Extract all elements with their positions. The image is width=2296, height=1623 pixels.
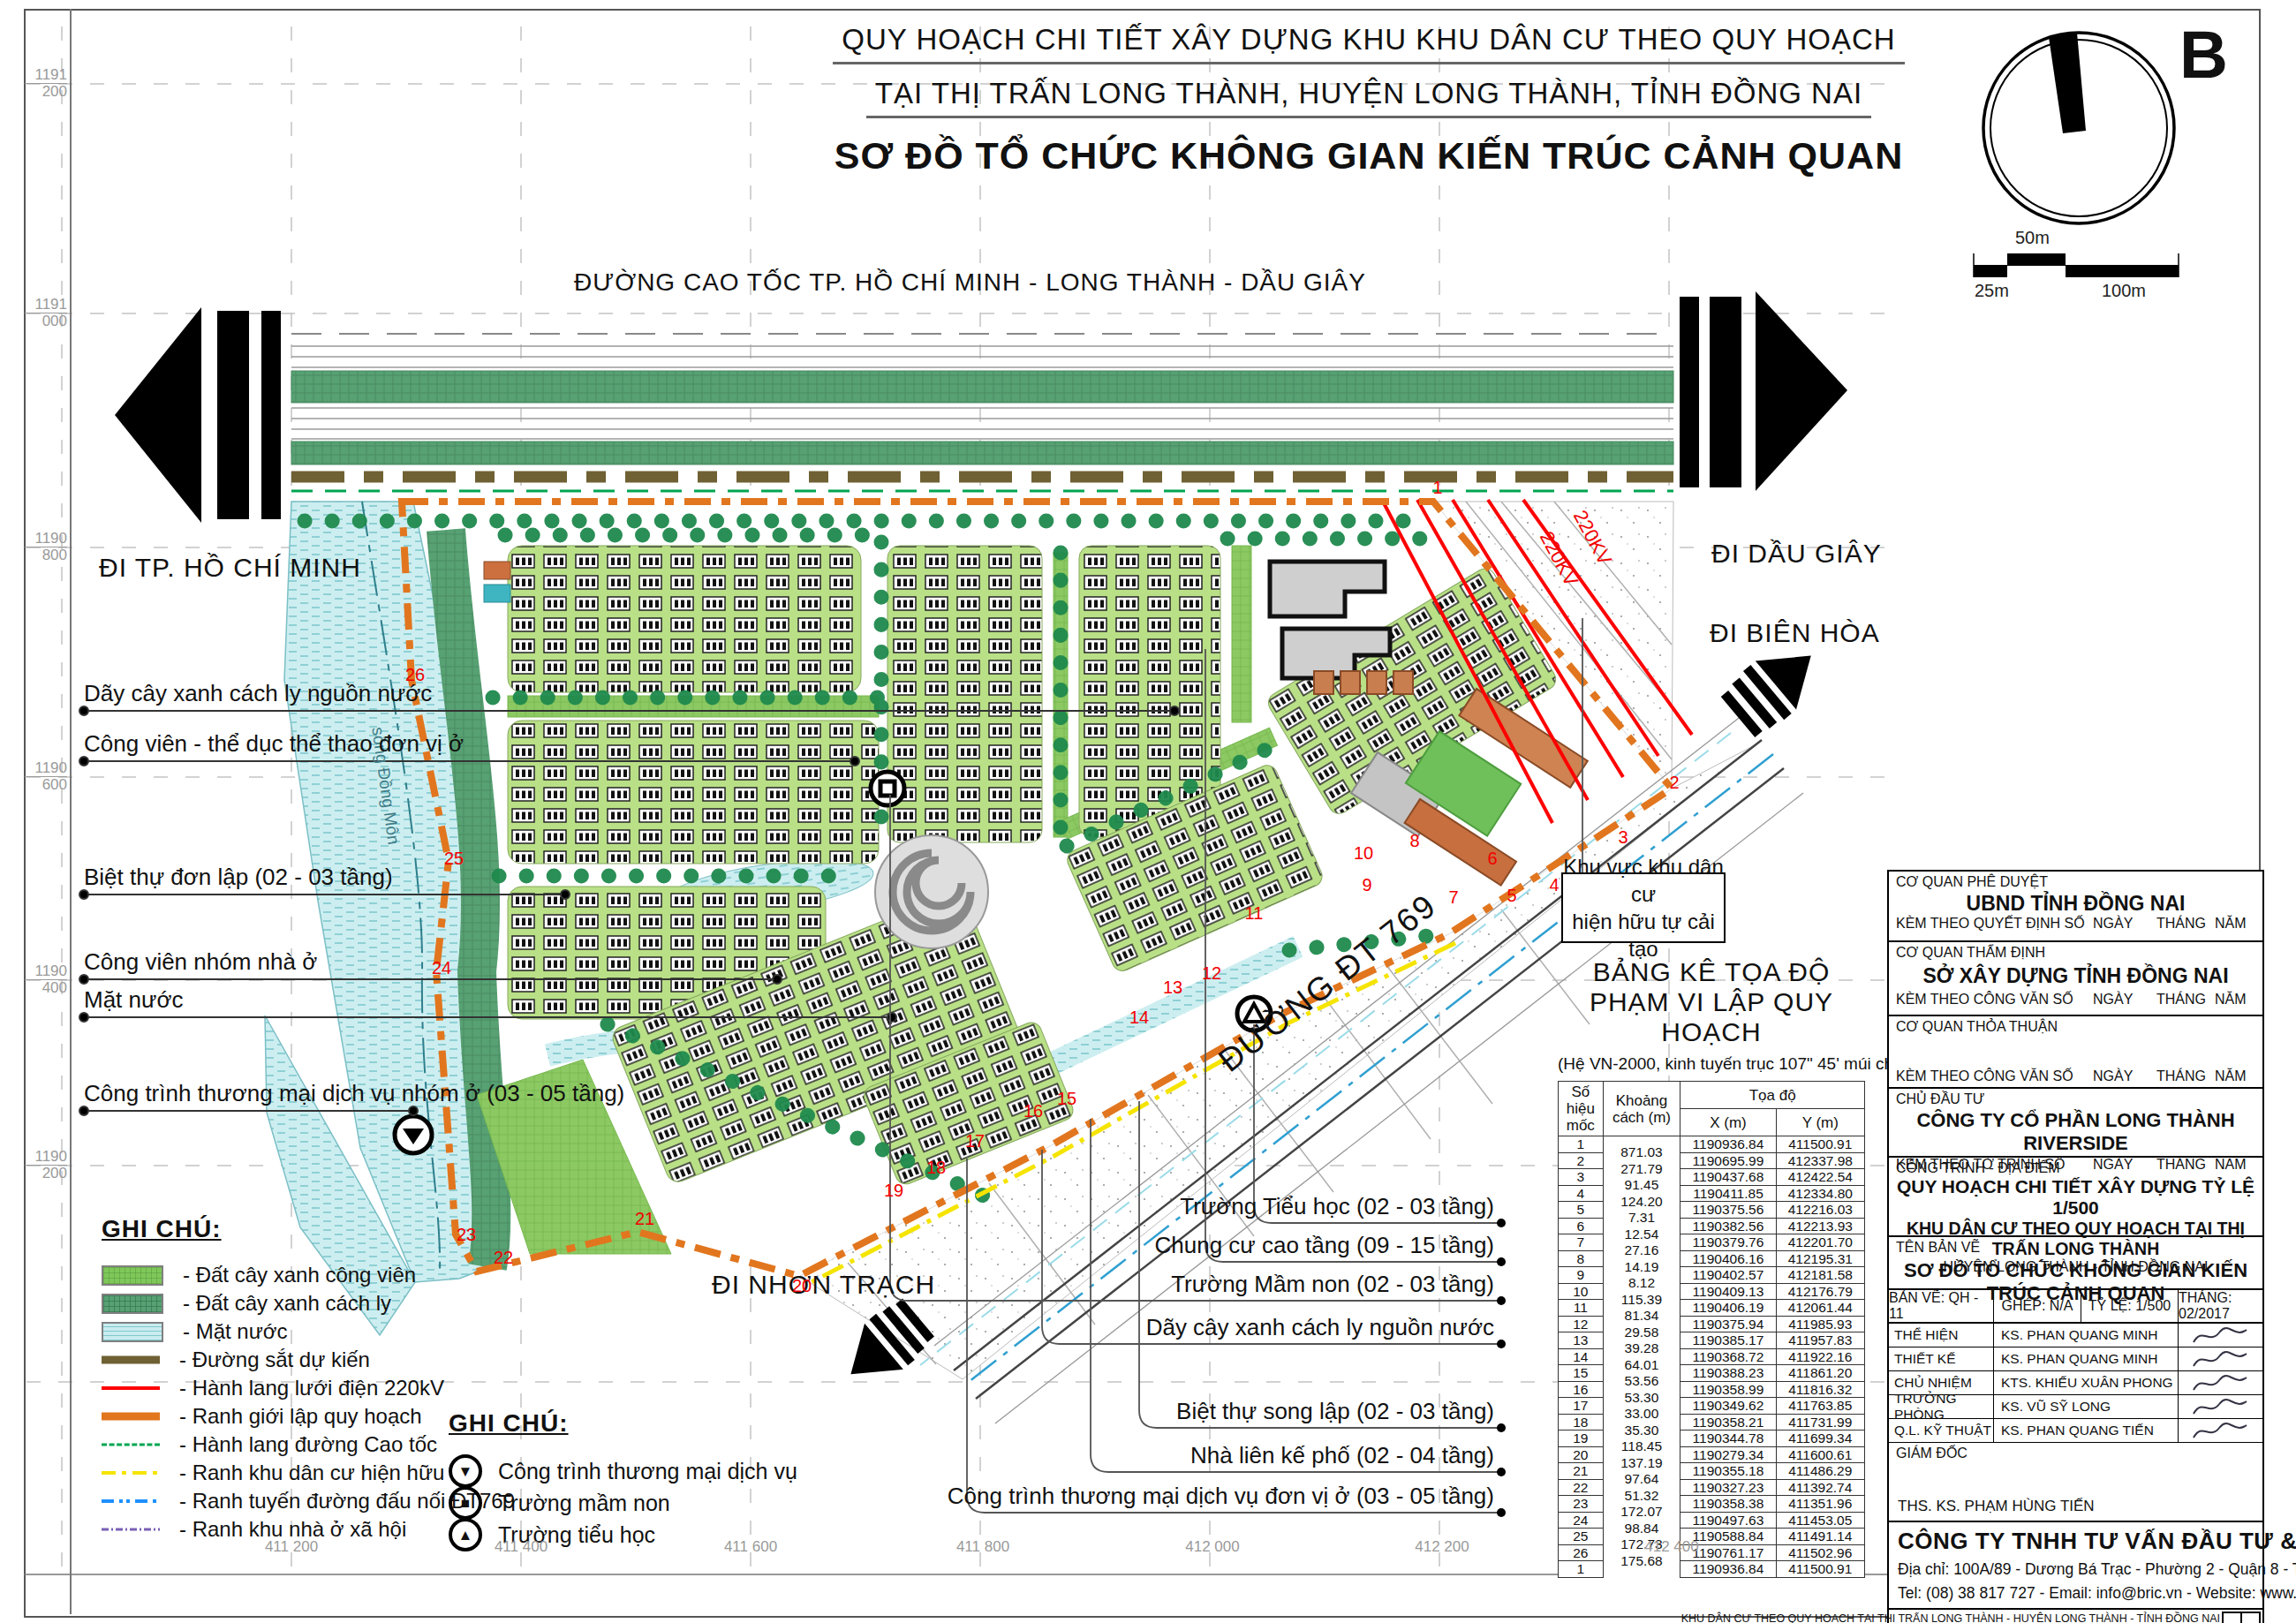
section-label: CÔNG TRÌNH - ĐỊA ĐIỂM [1889, 1158, 2262, 1176]
agreement-section: CƠ QUAN THỎA THUẬN KÈM THEO CÔNG VĂN SỐN… [1889, 1016, 2262, 1089]
legend-symbols: GHI CHÚ: ▼ Công trình thương mại dịch vụ… [449, 1409, 819, 1551]
section-label: TÊN BẢN VẼ [1889, 1237, 2262, 1256]
highway-band [291, 334, 1673, 491]
map-callout-label: Trường Mầm non (02 - 03 tầng) [1171, 1271, 1494, 1298]
legend-item-label: - Mặt nước [183, 1319, 288, 1344]
plan-sheet: QUY HOẠCH CHI TIẾT XÂY DỰNG KHU KHU DÂN … [0, 0, 2296, 1623]
drawing-name: SƠ ĐỒ TỔ CHỨC KHÔNG GIAN KIẾN TRÚC CẢNH … [1889, 1259, 2262, 1305]
map-callout-label: Trường Tiểu học (02 - 03 tầng) [1180, 1193, 1494, 1220]
investor-name: CÔNG TY CỔ PHẦN LONG THÀNH RIVERSIDE [1889, 1109, 2262, 1155]
map-annotation-label: Dãy cây xanh cách ly nguồn nước [84, 680, 432, 707]
boundary-marker-number: 21 [635, 1209, 654, 1229]
company-name: CÔNG TY TNHH TƯ VẤN ĐẦU TƯ & XÂY DỰNG BR… [1898, 1528, 2262, 1555]
boundary-marker-number: 13 [1163, 978, 1182, 998]
legend-swatch [102, 1521, 160, 1538]
grid-label: 411 800 [939, 1538, 1027, 1556]
kindergarten-symbol [871, 772, 904, 805]
legend-item-label: - Ranh khu dân cư hiện hữu [179, 1461, 444, 1485]
direction-nhontrach-label: ĐI NHƠN TRẠCH [712, 1270, 935, 1300]
coordinate-table-block: BẢNG KÊ TỌA ĐỘ PHẠM VI LẬP QUY HOẠCH (Hệ… [1558, 957, 1865, 1578]
coord-table-row: 1 871.03 1190936.84 411500.91 [1559, 1136, 1865, 1153]
map-callout-label: Nhà liên kế phố (02 - 04 tầng) [1190, 1442, 1494, 1469]
legend-symbol-icon: ▼ [449, 1454, 482, 1488]
legend-swatch [102, 1380, 160, 1397]
legend-swatch [102, 1493, 160, 1510]
map-callout-label: Công trình thương mại dịch vụ đơn vị ở (… [948, 1483, 1494, 1510]
legend-swatch [102, 1265, 163, 1286]
review-section: CƠ QUAN THẨM ĐỊNH SỞ XÂY DỰNG TỈNH ĐỒNG … [1889, 942, 2262, 1016]
direction-daugiay-label: ĐI DẦU GIÂY [1711, 539, 1882, 569]
map-callout-label: Chung cư cao tầng (09 - 15 tầng) [1154, 1232, 1494, 1259]
map-annotation-label: Mặt nước [84, 986, 183, 1014]
boundary-marker-number: 16 [1023, 1101, 1043, 1121]
sheet-title: QUY HOẠCH CHI TIẾT XÂY DỰNG KHU KHU DÂN … [826, 23, 1912, 177]
director-name: THS. KS. PHẠM HÙNG TIẾN [1898, 1498, 2095, 1515]
approve-agency: UBND TỈNH ĐỒNG NAI [1889, 892, 2262, 916]
col-header-distance: Khoảng cách (m) [1603, 1082, 1680, 1136]
company-section: CÔNG TY TNHH TƯ VẤN ĐẦU TƯ & XÂY DỰNG BR… [1889, 1522, 2262, 1610]
signature [2179, 1419, 2262, 1442]
staff-row: THIẾT KẾ KS. PHAN QUANG MINH [1889, 1347, 2262, 1371]
boundary-marker-number: 1 [1432, 478, 1442, 498]
staff-row: TRƯỞNG PHÒNG KS. VŨ SỸ LONG [1889, 1395, 2262, 1419]
signature [2179, 1347, 2262, 1370]
grid-label: 1191000 [25, 297, 67, 329]
existing-area-note-box: Khu vực khu dân cư hiện hữu tự cải tạo [1561, 872, 1726, 943]
grid-label: 1190400 [25, 963, 67, 996]
boundary-marker-number: 19 [884, 1181, 903, 1201]
boundary-marker-number: 6 [1487, 849, 1497, 869]
grid-label: 412 400 [1628, 1538, 1716, 1556]
strip-line-1: KHU DÂN CƯ THEO QUY HOẠCH TẠI THỊ TRẤN L… [1681, 1612, 2220, 1623]
scale-100m-label: 100m [2102, 281, 2146, 301]
commercial-symbol [395, 1116, 432, 1153]
grid-label: 1190600 [25, 760, 67, 793]
compass-needle [2049, 33, 2086, 133]
grid-label: 1190200 [25, 1149, 67, 1181]
legend-swatch [102, 1352, 160, 1369]
boundary-marker-number: 17 [965, 1131, 985, 1151]
north-label: B [2179, 16, 2228, 93]
boundary-marker-number: 3 [1618, 827, 1628, 848]
grid-label: 411 600 [706, 1538, 795, 1556]
grid-label: 412 000 [1168, 1538, 1257, 1556]
signature [2179, 1324, 2262, 1347]
map-annotation-label: Biệt thự đơn lập (02 - 03 tầng) [84, 864, 393, 891]
boundary-marker-number: 5 [1507, 886, 1516, 906]
title-line-3: SƠ ĐỒ TỔ CHỨC KHÔNG GIAN KIẾN TRÚC CẢNH … [826, 134, 1912, 177]
legend-item: - Đất cây xanh công viên [102, 1261, 525, 1289]
coord-table-subtitle: (Hệ VN-2000, kinh tuyến trục 107" 45' mú… [1558, 1054, 1865, 1074]
legend-item-label: - Đất cây xanh công viên [183, 1263, 416, 1287]
legend-item-label: - Ranh giới lập quy hoạch [179, 1404, 422, 1429]
legend-swatch [102, 1322, 163, 1342]
section-label: GIÁM ĐỐC [1889, 1443, 2262, 1461]
col-header-coords: Tọa độ [1680, 1082, 1865, 1109]
boundary-marker-number: 15 [1057, 1089, 1076, 1109]
coordinate-table: Số hiệu mốc Khoảng cách (m) Tọa độ X (m)… [1558, 1081, 1865, 1578]
boundary-marker-number: 10 [1354, 843, 1373, 864]
title-line-1: QUY HOẠCH CHI TIẾT XÂY DỰNG KHU KHU DÂN … [833, 23, 1904, 64]
legend-item-label: - Đường sắt dự kiến [179, 1347, 370, 1372]
compass [1983, 33, 2174, 223]
legend-item-label: - Hành lang lưới điện 220kV [179, 1376, 444, 1400]
boundary-marker-number: 8 [1409, 831, 1419, 851]
section-label: CƠ QUAN THỎA THUẬN [1889, 1016, 2262, 1035]
director-section: GIÁM ĐỐC THS. KS. PHẠM HÙNG TIẾN [1889, 1443, 2262, 1522]
legend-symbol-label: Trường mầm non [498, 1491, 670, 1516]
boundary-marker-number: 7 [1448, 887, 1458, 908]
bottom-strip: KHU DÂN CƯ THEO QUY HOẠCH TẠI THỊ TRẤN L… [1889, 1610, 2262, 1623]
col-header-y: Y (m) [1776, 1109, 1864, 1136]
investor-section: CHỦ ĐẦU TƯ CÔNG TY CỔ PHẦN LONG THÀNH RI… [1889, 1089, 2262, 1158]
coord-table-title-1: BẢNG KÊ TỌA ĐỘ [1558, 957, 1865, 987]
section-label: CƠ QUAN PHÊ DUYỆT [1889, 872, 2262, 890]
boundary-marker-number: 24 [432, 958, 451, 978]
legend-swatch [102, 1465, 160, 1482]
boundary-marker-number: 2 [1669, 773, 1679, 793]
direction-hcmc-label: ĐI TP. HỒ CHÍ MINH [99, 553, 361, 583]
staff-row: Q.L. KỸ THUẬT KS. PHAN QUANG TIẾN [1889, 1419, 2262, 1443]
legend-item: - Hành lang lưới điện 220kV [102, 1374, 525, 1402]
map-callout-label: Dãy cây xanh cách ly nguồn nước [1146, 1314, 1494, 1341]
map-annotation-label: Công viên nhóm nhà ở [84, 948, 317, 976]
legend-swatch [102, 1294, 163, 1314]
grid-label: 1191200 [25, 67, 67, 100]
staff-rows: THỂ HIỆN KS. PHAN QUANG MINH THIẾT KẾ KS… [1889, 1324, 2262, 1443]
arrow-to-daugiay [1680, 291, 1847, 491]
drawing-name-section: TÊN BẢN VẼ SƠ ĐỒ TỔ CHỨC KHÔNG GIAN KIẾN… [1889, 1237, 2262, 1290]
scale-25m-label: 25m [1975, 281, 2009, 301]
boundary-marker-number: 20 [792, 1276, 812, 1296]
col-header-moc: Số hiệu mốc [1559, 1082, 1604, 1136]
revision-boxes [2222, 1612, 2261, 1623]
company-address: Địa chỉ: 100A/89 - Dương Bá Trạc - Phườn… [1898, 1560, 2262, 1579]
map-annotation-label: Công trình thương mại dịch vụ nhóm ở (03… [84, 1080, 624, 1107]
staff-row: THỂ HIỆN KS. PHAN QUANG MINH [1889, 1324, 2262, 1347]
col-header-x: X (m) [1680, 1109, 1776, 1136]
highway-label: ĐƯỜNG CAO TỐC TP. HỒ CHÍ MINH - LONG THÀ… [574, 268, 1272, 297]
direction-bienhoa-label: ĐI BIÊN HÒA [1710, 618, 1880, 648]
boundary-marker-number: 14 [1129, 1008, 1149, 1028]
legend-symbols-title: GHI CHÚ: [449, 1409, 819, 1438]
grid-label: 412 200 [1398, 1538, 1486, 1556]
legend-symbol-item: ■ Trường mầm non [449, 1487, 819, 1519]
coord-table-title-2: PHẠM VI LẬP QUY HOẠCH [1558, 987, 1865, 1047]
boundary-marker-number: 23 [457, 1225, 476, 1245]
signature [2179, 1395, 2262, 1418]
approval-section: CƠ QUAN PHÊ DUYỆT UBND TỈNH ĐỒNG NAI KÈM… [1889, 872, 2262, 942]
legend-symbol-icon: ■ [449, 1486, 482, 1520]
project-line-1: QUY HOẠCH CHI TIẾT XÂY DỰNG TỶ LỆ 1/500 [1889, 1176, 2262, 1219]
legend-item: - Mặt nước [102, 1317, 525, 1346]
scale-50m-label: 50m [2015, 228, 2050, 248]
legend-swatch [102, 1437, 160, 1453]
boundary-marker-number: 11 [1245, 903, 1264, 924]
note-line-1: Khu vực khu dân cư [1563, 853, 1724, 908]
legend-item: - Đất cây xanh cách ly [102, 1289, 525, 1317]
title-line-2: TẠI THỊ TRẤN LONG THÀNH, HUYỆN LONG THÀN… [866, 77, 1871, 118]
grid-label: 1190800 [25, 531, 67, 563]
signature [2179, 1371, 2262, 1394]
boundary-marker-number: 9 [1362, 875, 1371, 895]
company-contact: Tel: (08) 38 817 727 - Email: info@bric.… [1898, 1584, 2262, 1603]
boundary-marker-number: 26 [405, 665, 425, 685]
legend-item: - Đường sắt dự kiến [102, 1346, 525, 1374]
legend-symbol-label: Công trình thương mại dịch vụ [498, 1459, 797, 1484]
legend-swatch [102, 1408, 160, 1425]
boundary-marker-number: 18 [926, 1158, 946, 1178]
boundary-marker-number: 12 [1202, 963, 1221, 984]
project-section: CÔNG TRÌNH - ĐỊA ĐIỂM QUY HOẠCH CHI TIẾT… [1889, 1158, 2262, 1237]
boundary-marker-number: 22 [494, 1248, 513, 1268]
map-callout-label: Biệt thự song lập (02 - 03 tầng) [1176, 1398, 1494, 1425]
map-annotation-label: Công viên - thể dục thể thao đơn vị ở [84, 730, 464, 758]
legend-item-label: - Đất cây xanh cách ly [183, 1291, 391, 1316]
review-agency: SỞ XÂY DỰNG TỈNH ĐỒNG NAI [1889, 964, 2262, 988]
grid-label: 411 200 [247, 1538, 336, 1556]
note-line-2: hiện hữu tự cải tạo [1563, 908, 1724, 962]
grid-label: 411 400 [477, 1538, 565, 1556]
legend-item-label: - Hành lang đường Cao tốc [179, 1432, 437, 1457]
boundary-marker-number: 4 [1549, 875, 1559, 895]
arrow-to-hcmc [115, 307, 281, 523]
title-block: CƠ QUAN PHÊ DUYỆT UBND TỈNH ĐỒNG NAI KÈM… [1887, 870, 2264, 1623]
boundary-marker-number: 25 [444, 849, 464, 869]
scale-bar [1974, 253, 2179, 277]
section-label: CHỦ ĐẦU TƯ [1889, 1089, 2262, 1107]
section-label: CƠ QUAN THẨM ĐỊNH [1889, 942, 2262, 961]
legend-symbol-item: ▼ Công trình thương mại dịch vụ [449, 1455, 819, 1487]
spiral-plaza [875, 835, 988, 948]
